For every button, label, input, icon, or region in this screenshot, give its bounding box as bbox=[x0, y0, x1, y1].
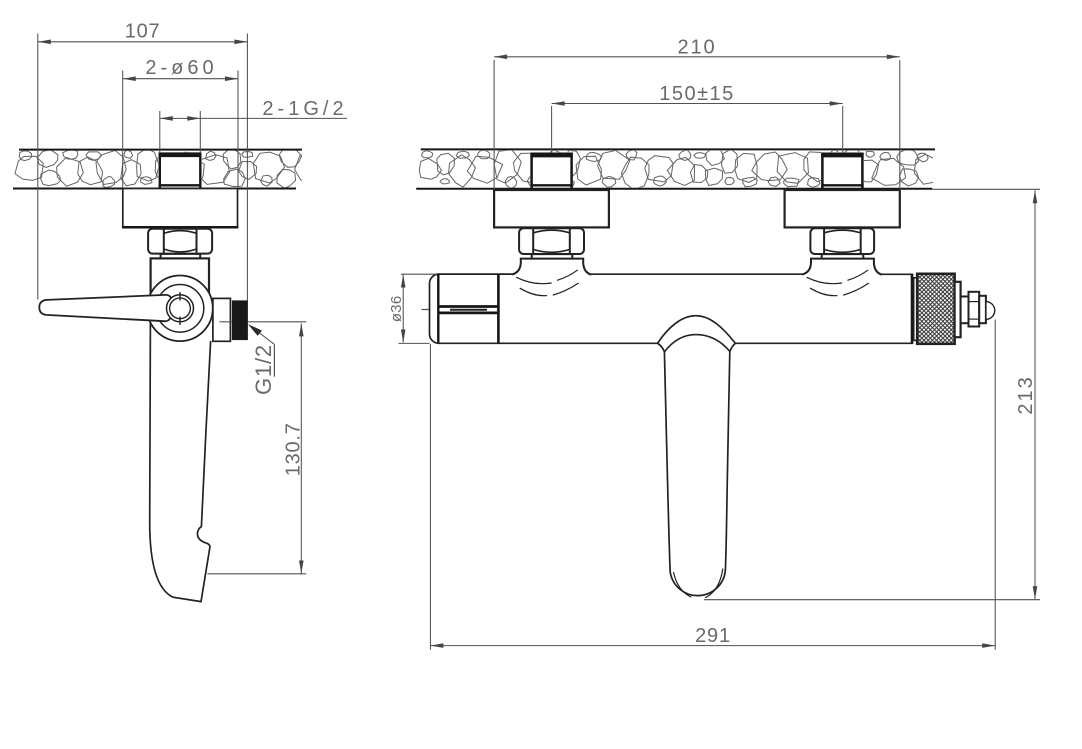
svg-text:130.7: 130.7 bbox=[282, 422, 304, 476]
svg-text:210: 210 bbox=[677, 36, 716, 58]
svg-text:ø36: ø36 bbox=[388, 295, 405, 322]
svg-text:107: 107 bbox=[125, 20, 161, 42]
svg-text:2-1G/2: 2-1G/2 bbox=[262, 98, 347, 120]
svg-text:291: 291 bbox=[695, 625, 731, 647]
svg-text:213: 213 bbox=[1015, 375, 1037, 414]
svg-text:2-ø60: 2-ø60 bbox=[145, 57, 217, 79]
svg-text:G1/2: G1/2 bbox=[251, 344, 276, 395]
svg-text:150±15: 150±15 bbox=[659, 83, 735, 105]
